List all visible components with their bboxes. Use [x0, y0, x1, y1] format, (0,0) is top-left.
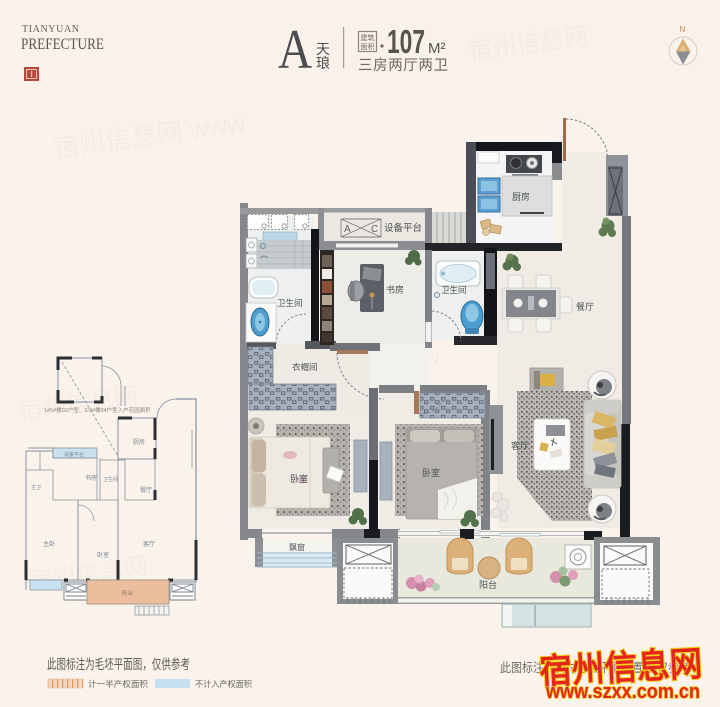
- svg-text:卫生间: 卫生间: [103, 476, 118, 483]
- svg-text:餐厅: 餐厅: [576, 301, 594, 312]
- svg-text:卧室: 卧室: [97, 551, 109, 559]
- svg-text:此图标注为毛坯平面图，仅供参考: 此图标注为毛坯平面图，仅供参考: [47, 656, 190, 672]
- svg-text:卫生间: 卫生间: [441, 285, 467, 295]
- svg-text:衣帽间: 衣帽间: [292, 362, 318, 372]
- svg-text:卫生间: 卫生间: [277, 298, 303, 308]
- svg-text:不计入产权面积: 不计入产权面积: [195, 679, 252, 689]
- svg-text:主卧: 主卧: [43, 540, 55, 548]
- svg-text:C: C: [371, 224, 378, 235]
- svg-text:N: N: [680, 25, 686, 34]
- svg-text:面积: 面积: [361, 42, 375, 51]
- svg-text:书房: 书房: [85, 474, 97, 482]
- svg-text:厨房: 厨房: [133, 438, 145, 446]
- svg-text:计一半产权面积: 计一半产权面积: [88, 679, 148, 689]
- svg-text:琅: 琅: [316, 55, 330, 71]
- svg-text:TIANYUAN: TIANYUAN: [22, 24, 79, 35]
- svg-text:www.szxx.com.cn: www.szxx.com.cn: [545, 681, 700, 702]
- svg-text:餐厅: 餐厅: [140, 486, 152, 494]
- svg-text:三房两厅两卫: 三房两厅两卫: [358, 57, 448, 74]
- svg-text:1#5#楼02户型、2/3#楼04户型入户花园面积: 1#5#楼02户型、2/3#楼04户型入户花园面积: [44, 406, 151, 414]
- svg-text:厨房: 厨房: [512, 191, 530, 202]
- svg-text:客厅: 客厅: [511, 440, 529, 451]
- svg-text:PREFECTURE: PREFECTURE: [21, 36, 104, 53]
- svg-text:阳台: 阳台: [122, 589, 134, 597]
- svg-text:主卫: 主卫: [31, 484, 41, 491]
- svg-text:卧室: 卧室: [422, 467, 440, 478]
- svg-text:建筑: 建筑: [361, 33, 375, 42]
- svg-text:设备平台: 设备平台: [384, 222, 422, 234]
- svg-text:A: A: [344, 224, 351, 235]
- svg-text:阳台: 阳台: [479, 579, 497, 590]
- svg-text:客厅: 客厅: [143, 540, 155, 548]
- svg-text:卧室: 卧室: [290, 473, 308, 484]
- svg-text:A: A: [278, 19, 312, 81]
- svg-text:107: 107: [387, 23, 425, 60]
- svg-text:设备平台: 设备平台: [64, 451, 84, 458]
- svg-text:书房: 书房: [386, 284, 404, 295]
- svg-text:M²: M²: [428, 40, 446, 57]
- svg-text:飘窗: 飘窗: [289, 542, 305, 552]
